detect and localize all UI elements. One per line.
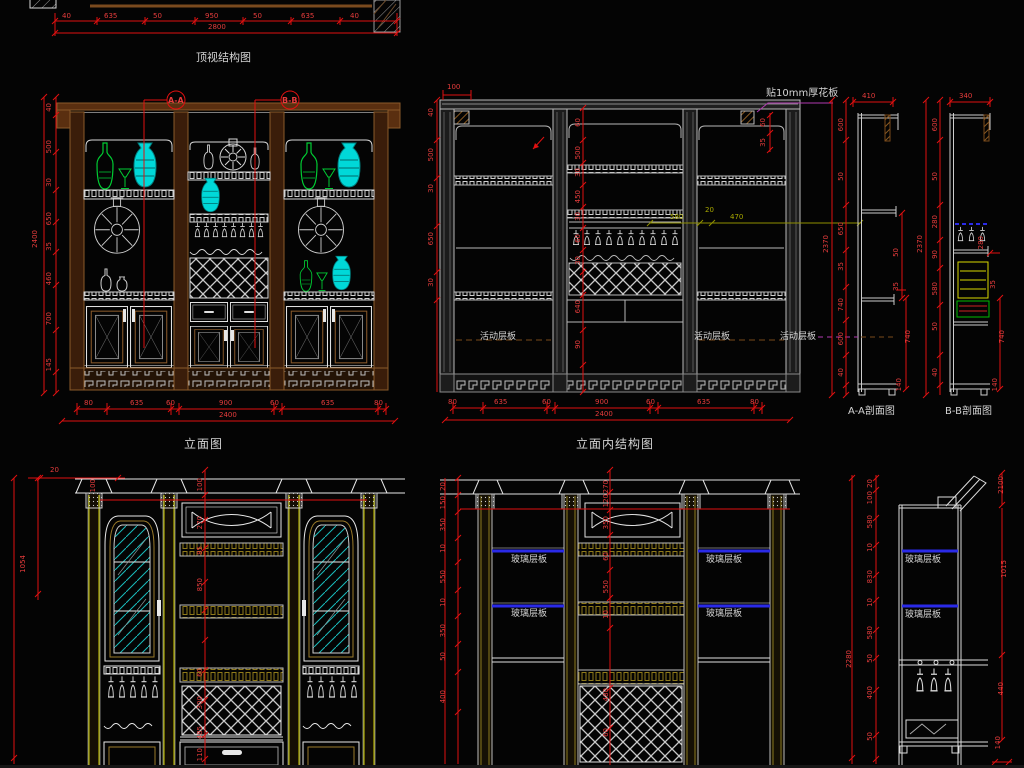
dim-label-aa_left-1: 50 [838, 172, 845, 181]
elevation-title: 立面图 [184, 438, 223, 450]
dim-label-aa_total-0: 2370 [823, 235, 830, 253]
internal-elevation-drawing [434, 90, 863, 423]
dim-label-standalone-5: 10 [867, 598, 874, 607]
internal-dimension-lines [434, 90, 793, 423]
dim-label-elev_bottom-6: 80 [374, 400, 383, 407]
dim-label-bb_right-3: 140 [992, 378, 999, 391]
dim-label-bm_center-1: 120 [603, 494, 610, 507]
elevation-drawing [41, 91, 400, 424]
cad-linework [0, 0, 1024, 768]
glass-shelf-label: 玻璃层板 [511, 610, 547, 619]
section-aa-title: A-A剖面图 [848, 407, 895, 417]
dim-label-elev_left-6: 700 [46, 312, 53, 325]
drawer-box-yellow [958, 262, 988, 298]
dim-label-bl_center-0: 100 [197, 478, 204, 491]
shelf-box-green [957, 301, 989, 317]
dim-label-mid_center-4: 30 [575, 212, 582, 221]
dim-label-br_right-2: 440 [998, 682, 1005, 695]
dim-label-bm_center-6: 480 [603, 688, 610, 701]
dim-label-top_chain-6: 40 [350, 13, 359, 20]
dim-label-bm_left-2: 350 [440, 518, 447, 531]
dim-label-standalone-6: 580 [867, 626, 874, 639]
internal-elevation-title: 立面内结构图 [576, 438, 654, 450]
dim-label-bb_left-5: 50 [932, 322, 939, 331]
dim-label-bm_left-3: 10 [440, 544, 447, 553]
dim-label-bm_center-3: 60 [603, 552, 610, 561]
dim-label-mid_bottom-6: 80 [750, 399, 759, 406]
dim-label-standalone-0: 20 [867, 479, 874, 488]
dim-label-elev_left-4: 35 [46, 242, 53, 251]
dim-label-mid_bottom_total-0: 2400 [595, 411, 613, 418]
glass-shelf-label: 玻璃层板 [706, 556, 742, 565]
fan-plate-decor [95, 198, 140, 253]
dim-label-bl_center-2: 85 [197, 546, 204, 555]
top-view-title: 顶视结构图 [196, 52, 251, 63]
dim-label-mid_left-1: 500 [428, 148, 435, 161]
dim-label-br_right-1: 1015 [1001, 560, 1008, 578]
dim-label-standalone_total-0: 2280 [846, 650, 853, 668]
fan-plate-decor [299, 198, 344, 253]
dim-label-bb_total-0: 2370 [917, 235, 924, 253]
dim-label-mid_center-3: 450 [575, 190, 582, 203]
dim-label-standalone-4: 830 [867, 570, 874, 583]
dim-label-aa_right-2: 740 [905, 330, 912, 343]
glass-shelf-label: 玻璃层板 [905, 611, 941, 620]
dim-label-top_chain-4: 50 [253, 13, 262, 20]
dim-label-aa_left-5: 600 [838, 332, 845, 345]
dim-label-bb_left-3: 90 [932, 250, 939, 259]
dim-label-aa_top-0: 410 [862, 93, 875, 100]
glass-shelf-label: 玻璃层板 [511, 556, 547, 565]
dim-label-elev_bottom-3: 900 [219, 400, 232, 407]
dim-label-bb_left-6: 40 [932, 368, 939, 377]
dim-label-bb_right-0: 280 [978, 236, 985, 249]
dim-label-bl_center-3: 850 [197, 578, 204, 591]
dim-label-bm_center-7: 60 [603, 728, 610, 737]
dim-label-bb_right-1: 35 [990, 280, 997, 289]
dim-label-standalone-1: 100 [867, 491, 874, 504]
dim-label-mid_bottom-5: 635 [697, 399, 710, 406]
glass-door [304, 516, 358, 661]
dim-label-bm_center-4: 550 [603, 580, 610, 593]
dim-label-mid_left-3: 650 [428, 232, 435, 245]
bottom-internal-drawing [440, 467, 800, 768]
dim-label-mid_right-0: 60 [760, 118, 767, 127]
dim-label-standalone-2: 580 [867, 515, 874, 528]
dim-label-olive-1: 20 [705, 207, 714, 214]
dim-label-mid_left-2: 30 [428, 184, 435, 193]
dim-label-elev_bottom-5: 635 [321, 400, 334, 407]
glass-shelf-label: 玻璃层板 [706, 610, 742, 619]
dim-label-bm_left-7: 50 [440, 652, 447, 661]
dim-label-standalone-3: 10 [867, 543, 874, 552]
dim-label-standalone-8: 400 [867, 686, 874, 699]
dim-label-olive-0: 580 [670, 214, 683, 221]
dim-label-top_chain-1: 635 [104, 13, 117, 20]
dim-label-bm_left-1: 150 [440, 496, 447, 509]
dim-label-bb_left-2: 280 [932, 215, 939, 228]
dim-label-aa_left-6: 40 [838, 368, 845, 377]
dim-label-standalone-9: 50 [867, 732, 874, 741]
dim-label-bl_left_total-0: 1054 [20, 555, 27, 573]
dim-label-elev_bottom-2: 60 [166, 400, 175, 407]
dim-label-mid_bottom-2: 60 [542, 399, 551, 406]
dim-label-mid_left-0: 40 [428, 108, 435, 117]
dim-label-bb_left-4: 580 [932, 282, 939, 295]
dim-label-bb_left-1: 50 [932, 172, 939, 181]
dim-label-top_chain-5: 635 [301, 13, 314, 20]
dim-label-bm_left-5: 10 [440, 598, 447, 607]
glass-shelf-label: 玻璃层板 [905, 556, 941, 565]
dim-label-bm_left-8: 400 [440, 690, 447, 703]
dim-label-elev_left_total-0: 2400 [32, 230, 39, 248]
dim-label-bl_center-1: 270 [197, 516, 204, 529]
section-bb-title: B-B剖面图 [945, 407, 992, 417]
glass-door [105, 516, 159, 661]
dim-label-aa_left-4: 740 [838, 298, 845, 311]
dim-label-mid_left-4: 30 [428, 278, 435, 287]
dim-label-bl_center-4: 60 [197, 668, 204, 677]
cad-canvas: 顶视结构图 立面图 立面内结构图 A-A剖面图 B-B剖面图 A-A B-B 贴… [0, 0, 1024, 768]
dim-label-elev_left-2: 30 [46, 178, 53, 187]
dim-label-mid_center-7: 640 [575, 300, 582, 313]
dim-label-aa_right-0: 50 [893, 248, 900, 257]
dim-label-bm_center-2: 350 [603, 516, 610, 529]
bottom-elevation-drawing [11, 467, 405, 768]
dim-label-bm_center-0: 270 [603, 480, 610, 493]
dim-label-mid_center-0: 60 [575, 118, 582, 127]
board-note: 贴10mm厚花板 [766, 89, 838, 99]
dim-label-mid_center-5: 60 [575, 234, 582, 243]
dim-label-mid_center-8: 90 [575, 340, 582, 349]
section-bb-drawing [923, 97, 1003, 398]
movable-shelf-label: 活动层板 [480, 333, 516, 342]
dim-label-elev_bottom-1: 635 [130, 400, 143, 407]
dim-label-bl_center-6: 485 [197, 726, 204, 739]
dim-label-elev_left-7: 145 [46, 358, 53, 371]
dim-label-top_total-0: 2800 [208, 24, 226, 31]
dim-label-bb_right-2: 740 [999, 330, 1006, 343]
dim-label-bl_top_a-0: 20 [50, 467, 59, 474]
section-bb-dimension-lines [923, 97, 1003, 398]
dim-label-mid_right-1: 35 [760, 138, 767, 147]
dim-label-bl_center-5: 300 [197, 696, 204, 709]
dim-label-mid_bottom-4: 60 [646, 399, 655, 406]
dim-label-elev_bottom_total-0: 2400 [219, 412, 237, 419]
dim-label-top_chain-0: 40 [62, 13, 71, 20]
dim-label-aa_left-2: 650 [838, 222, 845, 235]
section-marker-bb-label: B-B [282, 97, 298, 105]
dim-label-elev_left-1: 500 [46, 140, 53, 153]
dim-label-mid_bottom-1: 635 [494, 399, 507, 406]
section-marker-aa-label: A-A [168, 97, 184, 105]
dim-label-mid_bottom-0: 80 [448, 399, 457, 406]
dim-label-br_right-0: 2100 [998, 476, 1005, 494]
dim-label-bm_left-0: 20 [440, 482, 447, 491]
dim-label-elev_left-0: 40 [46, 103, 53, 112]
dim-label-bb_left-0: 600 [932, 118, 939, 131]
dim-label-bb_top-0: 340 [959, 93, 972, 100]
dim-label-mid_bottom-3: 900 [595, 399, 608, 406]
movable-shelf-label: 活动层板 [780, 333, 816, 342]
dim-label-aa_left-3: 35 [838, 262, 845, 271]
dim-label-elev_left-3: 650 [46, 212, 53, 225]
dim-label-bm_left-6: 350 [440, 624, 447, 637]
dim-label-elev_left-5: 460 [46, 272, 53, 285]
dim-label-standalone-7: 50 [867, 654, 874, 663]
dim-label-br_right-3: 140 [995, 736, 1002, 749]
door-handles [123, 309, 335, 341]
movable-shelf-label: 活动层板 [694, 333, 730, 342]
dim-label-mid_center-1: 500 [575, 146, 582, 159]
dim-label-mid_center-2: 30 [575, 168, 582, 177]
dim-label-elev_bottom-4: 60 [270, 400, 279, 407]
dim-label-aa_right-1: 35 [893, 282, 900, 291]
dim-label-aa_right-3: 140 [896, 378, 903, 391]
dim-label-elev_bottom-0: 80 [84, 400, 93, 407]
dim-label-bl_center-7: 110 [197, 748, 204, 761]
dim-label-bm_center-5: 10 [603, 610, 610, 619]
dim-label-mid_center-6: 30 [575, 256, 582, 265]
dim-label-olive-2: 470 [730, 214, 743, 221]
dim-label-top_chain-3: 950 [205, 13, 218, 20]
dim-label-aa_left-0: 600 [838, 118, 845, 131]
dim-label-bl_top_b-0: 100 [90, 479, 97, 492]
dim-label-mid_top-0: 100 [447, 84, 460, 91]
dim-label-top_chain-2: 50 [153, 13, 162, 20]
dim-label-bm_left-4: 550 [440, 570, 447, 583]
